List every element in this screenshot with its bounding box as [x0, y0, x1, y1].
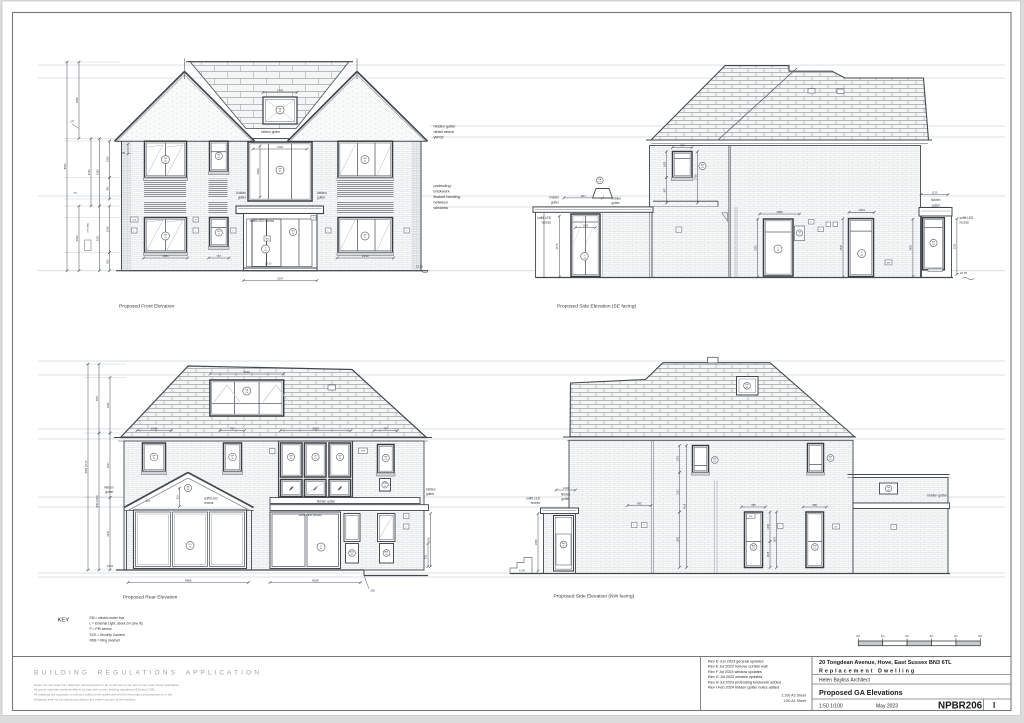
svg-text:20.95: 20.95 — [960, 271, 967, 275]
svg-text:1425: 1425 — [105, 156, 109, 162]
svg-text:hidden: hidden — [612, 197, 622, 201]
svg-text:All goods materials workmanshi: All goods materials workmanship to compl… — [34, 688, 155, 692]
svg-text:WG: WG — [363, 234, 367, 236]
svg-text:24.09: 24.09 — [107, 565, 114, 568]
svg-text:Rev E Jul 2023 remove curtai: Rev E Jul 2023 remove curtain wall — [708, 665, 768, 669]
svg-text:1580: 1580 — [776, 210, 783, 214]
svg-text:497: 497 — [663, 188, 666, 193]
svg-text:685: 685 — [813, 503, 818, 507]
svg-text:21.90: 21.90 — [519, 570, 526, 573]
svg-text:hidden: hidden — [104, 486, 114, 490]
svg-text:recess: recess — [204, 501, 214, 505]
svg-text:1900 (82ft): 1900 (82ft) — [87, 223, 90, 233]
svg-text:hidden gutter: hidden gutter — [317, 499, 337, 503]
svg-text:I: I — [993, 701, 995, 710]
svg-text:797: 797 — [680, 143, 685, 147]
svg-text:hidden: hidden — [317, 191, 327, 195]
svg-text:1017: 1017 — [676, 489, 679, 495]
svg-text:recess: recess — [531, 501, 541, 505]
svg-text:gutter: gutter — [612, 201, 621, 205]
svg-text:1:100 A3 Sheet: 1:100 A3 Sheet — [781, 694, 806, 698]
svg-text:797: 797 — [383, 426, 388, 430]
svg-text:3167: 3167 — [277, 276, 284, 280]
svg-text:Proposed Rear Elevation: Proposed Rear Elevation — [123, 595, 178, 601]
svg-text:277: 277 — [71, 121, 76, 124]
svg-text:1:50 1/100: 1:50 1/100 — [819, 704, 843, 710]
svg-text:2297: 2297 — [96, 395, 99, 401]
svg-text:protruding: protruding — [434, 184, 451, 188]
svg-text:1352: 1352 — [95, 169, 99, 175]
svg-text:Proposed GA Elevations: Proposed GA Elevations — [819, 688, 903, 697]
svg-text:2210: 2210 — [362, 254, 369, 258]
svg-text:4819: 4819 — [683, 503, 686, 509]
svg-text:Drawings area not be reproduce: Drawings area not be reproduced without … — [34, 698, 136, 702]
svg-text:2675: 2675 — [773, 536, 776, 542]
svg-text:2675: 2675 — [767, 551, 770, 557]
svg-text:2200: 2200 — [427, 537, 430, 543]
svg-text:225: 225 — [425, 554, 428, 559]
svg-text:gutter: gutter — [317, 196, 326, 200]
svg-text:Rev F Jul 2023 window update: Rev F Jul 2023 window updates — [708, 670, 762, 674]
svg-text:20 Tongdean Avenue, Hove, East: 20 Tongdean Avenue, Hove, East Sussex BN… — [819, 660, 952, 666]
svg-text:AW: AW — [752, 544, 755, 547]
svg-text:brickwork: brickwork — [434, 190, 450, 194]
svg-text:hidden: hidden — [931, 198, 941, 202]
svg-text:WF02: WF02 — [434, 135, 444, 139]
svg-text:Replacement Dwelling: Replacement Dwelling — [819, 669, 916, 675]
svg-text:767: 767 — [216, 254, 221, 258]
svg-text:Proposed Side Elevation (SE fa: Proposed Side Elevation (SE facing) — [557, 304, 636, 310]
svg-text:windows: windows — [434, 206, 449, 210]
svg-text:gutter: gutter — [238, 196, 247, 200]
svg-text:WG: WG — [164, 234, 168, 236]
svg-text:detail above: detail above — [434, 130, 454, 134]
svg-text:1023: 1023 — [858, 208, 865, 212]
svg-text:4008: 4008 — [312, 578, 319, 582]
svg-text:24.10: 24.10 — [265, 263, 272, 266]
svg-text:2325: 2325 — [840, 244, 843, 250]
svg-text:Rev H Jul 2023 protruding bri: Rev H Jul 2023 protruding brickwork adde… — [708, 680, 781, 684]
svg-text:hidden gutter: hidden gutter — [927, 494, 948, 498]
svg-text:3140: 3140 — [75, 235, 79, 241]
svg-text:23.95: 23.95 — [416, 265, 423, 269]
svg-text:1817: 1817 — [107, 462, 110, 468]
svg-text:hidden gutter: hidden gutter — [434, 124, 457, 128]
svg-text:RDB = Ring doorbell: RDB = Ring doorbell — [90, 639, 120, 643]
svg-text:1250: 1250 — [767, 523, 770, 529]
svg-text:feature banding: feature banding — [434, 195, 460, 199]
svg-text:hidden: hidden — [426, 488, 436, 492]
svg-text:227: 227 — [146, 500, 151, 503]
svg-text:soffit LED: soffit LED — [960, 216, 974, 220]
svg-text:WG: WG — [291, 230, 295, 232]
svg-text:hidden gutter: hidden gutter — [261, 130, 281, 134]
svg-text:EM: EM — [887, 262, 890, 264]
svg-text:1245: 1245 — [151, 426, 158, 430]
svg-text:759: 759 — [121, 152, 126, 155]
svg-text:1130: 1130 — [563, 486, 569, 490]
svg-text:WG: WG — [562, 543, 566, 545]
svg-text:2325: 2325 — [535, 539, 538, 545]
svg-text:1425: 1425 — [663, 161, 666, 167]
svg-text:soffit LED: soffit LED — [537, 216, 551, 220]
svg-text:685: 685 — [637, 501, 642, 505]
svg-text:hidden: hidden — [236, 191, 246, 195]
svg-text:1130: 1130 — [932, 191, 938, 195]
svg-text:recess: recess — [542, 221, 552, 225]
svg-text:916: 916 — [176, 495, 179, 500]
svg-text:825: 825 — [105, 259, 109, 264]
svg-text:1275: 1275 — [676, 456, 679, 462]
svg-text:SCE = Security Camera: SCE = Security Camera — [90, 633, 125, 637]
svg-text:2325: 2325 — [755, 245, 758, 251]
svg-text:L = External Light, about 2m: L = External Light, about 2m (one lit) — [90, 622, 143, 626]
svg-text:1506: 1506 — [105, 226, 109, 232]
svg-text:B U I L D I N G R E G U L A: B U I L D I N G R E G U L A T I O N S A … — [34, 670, 260, 677]
svg-text:2325: 2325 — [954, 243, 957, 249]
svg-text:Proposed Front Elevation: Proposed Front Elevation — [119, 304, 174, 310]
svg-text:2541: 2541 — [107, 530, 110, 536]
svg-text:1117: 1117 — [581, 195, 587, 198]
svg-text:SCE: SCE — [361, 451, 366, 453]
svg-text:685: 685 — [751, 503, 756, 507]
svg-text:Rev I Feb 2024 hidden gutter: Rev I Feb 2024 hidden gutter notes added — [708, 686, 779, 690]
svg-text:May 2023: May 2023 — [876, 704, 898, 710]
svg-text:2308: 2308 — [75, 97, 79, 103]
svg-text:Rev G Jul 2023 window update: Rev G Jul 2023 window updates — [708, 675, 763, 679]
svg-text:4866: 4866 — [185, 578, 192, 582]
svg-text:EM = electric meter box: EM = electric meter box — [90, 616, 125, 620]
svg-text:Helen Bayliss Architect: Helen Bayliss Architect — [819, 678, 870, 684]
svg-text:AG: AG — [932, 240, 935, 243]
svg-text:1340: 1340 — [277, 88, 284, 92]
svg-text:4050 (34 ft): 4050 (34 ft) — [96, 495, 99, 508]
svg-text:1581: 1581 — [162, 254, 169, 258]
svg-text:867: 867 — [105, 186, 109, 191]
svg-text:soffit LED: soffit LED — [526, 497, 540, 501]
svg-text:2400: 2400 — [256, 168, 260, 174]
svg-text:RW: RW — [383, 483, 386, 485]
svg-text:AW: AW — [829, 455, 832, 458]
svg-text:soffit LED recess: soffit LED recess — [299, 513, 322, 517]
svg-text:AO: AO — [835, 525, 838, 528]
svg-text:gutter: gutter — [932, 203, 941, 207]
svg-text:gutter: gutter — [561, 497, 570, 501]
svg-text:2321: 2321 — [95, 235, 99, 241]
svg-text:8595: 8595 — [63, 163, 67, 169]
svg-text:between: between — [434, 201, 448, 205]
svg-text:797: 797 — [230, 426, 235, 430]
svg-text:1706: 1706 — [694, 174, 697, 180]
svg-text:NPBR206: NPBR206 — [938, 701, 983, 712]
svg-text:soffit LED recess: soffit LED recess — [250, 219, 274, 223]
svg-text:AW: AW — [713, 457, 716, 460]
svg-text:2020: 2020 — [107, 402, 110, 408]
svg-text:2191: 2191 — [277, 145, 283, 149]
svg-text:recess: recess — [960, 221, 970, 225]
svg-text:1050: 1050 — [676, 536, 679, 542]
svg-text:2475: 2475 — [555, 243, 559, 249]
svg-text:KEY: KEY — [58, 618, 70, 624]
svg-text:hidden: hidden — [561, 493, 571, 497]
svg-text:gutter: gutter — [551, 200, 560, 204]
svg-text:All drawings are copyright on: All drawings are copyright on this and s… — [34, 693, 173, 697]
svg-text:Proposed Side Elevation (NW fa: Proposed Side Elevation (NW facing) — [554, 594, 635, 600]
svg-text:hidden: hidden — [549, 196, 559, 200]
svg-text:soffit LED: soffit LED — [204, 497, 218, 501]
svg-text:DG: DG — [188, 544, 192, 546]
svg-text:Notes: Do not scale from draw: Notes: Do not scale from drawings. All d… — [34, 683, 180, 687]
svg-text:2130: 2130 — [87, 169, 91, 175]
svg-text:1:50 A1 Sheet: 1:50 A1 Sheet — [783, 699, 806, 703]
svg-text:2822: 2822 — [312, 426, 319, 430]
svg-text:250: 250 — [371, 589, 376, 593]
svg-text:AW: AW — [701, 163, 704, 166]
svg-text:1026: 1026 — [583, 224, 589, 227]
svg-text:Rev D Jun 2023 general updat: Rev D Jun 2023 general updates — [708, 660, 764, 664]
svg-text:gutter: gutter — [426, 492, 435, 496]
svg-text:WG: WG — [217, 231, 221, 233]
svg-text:3020: 3020 — [244, 370, 251, 374]
svg-text:2400: 2400 — [910, 244, 913, 250]
svg-text:6303 (70 ft): 6303 (70 ft) — [85, 460, 88, 473]
svg-text:P = PIR sensor: P = PIR sensor — [90, 627, 113, 631]
